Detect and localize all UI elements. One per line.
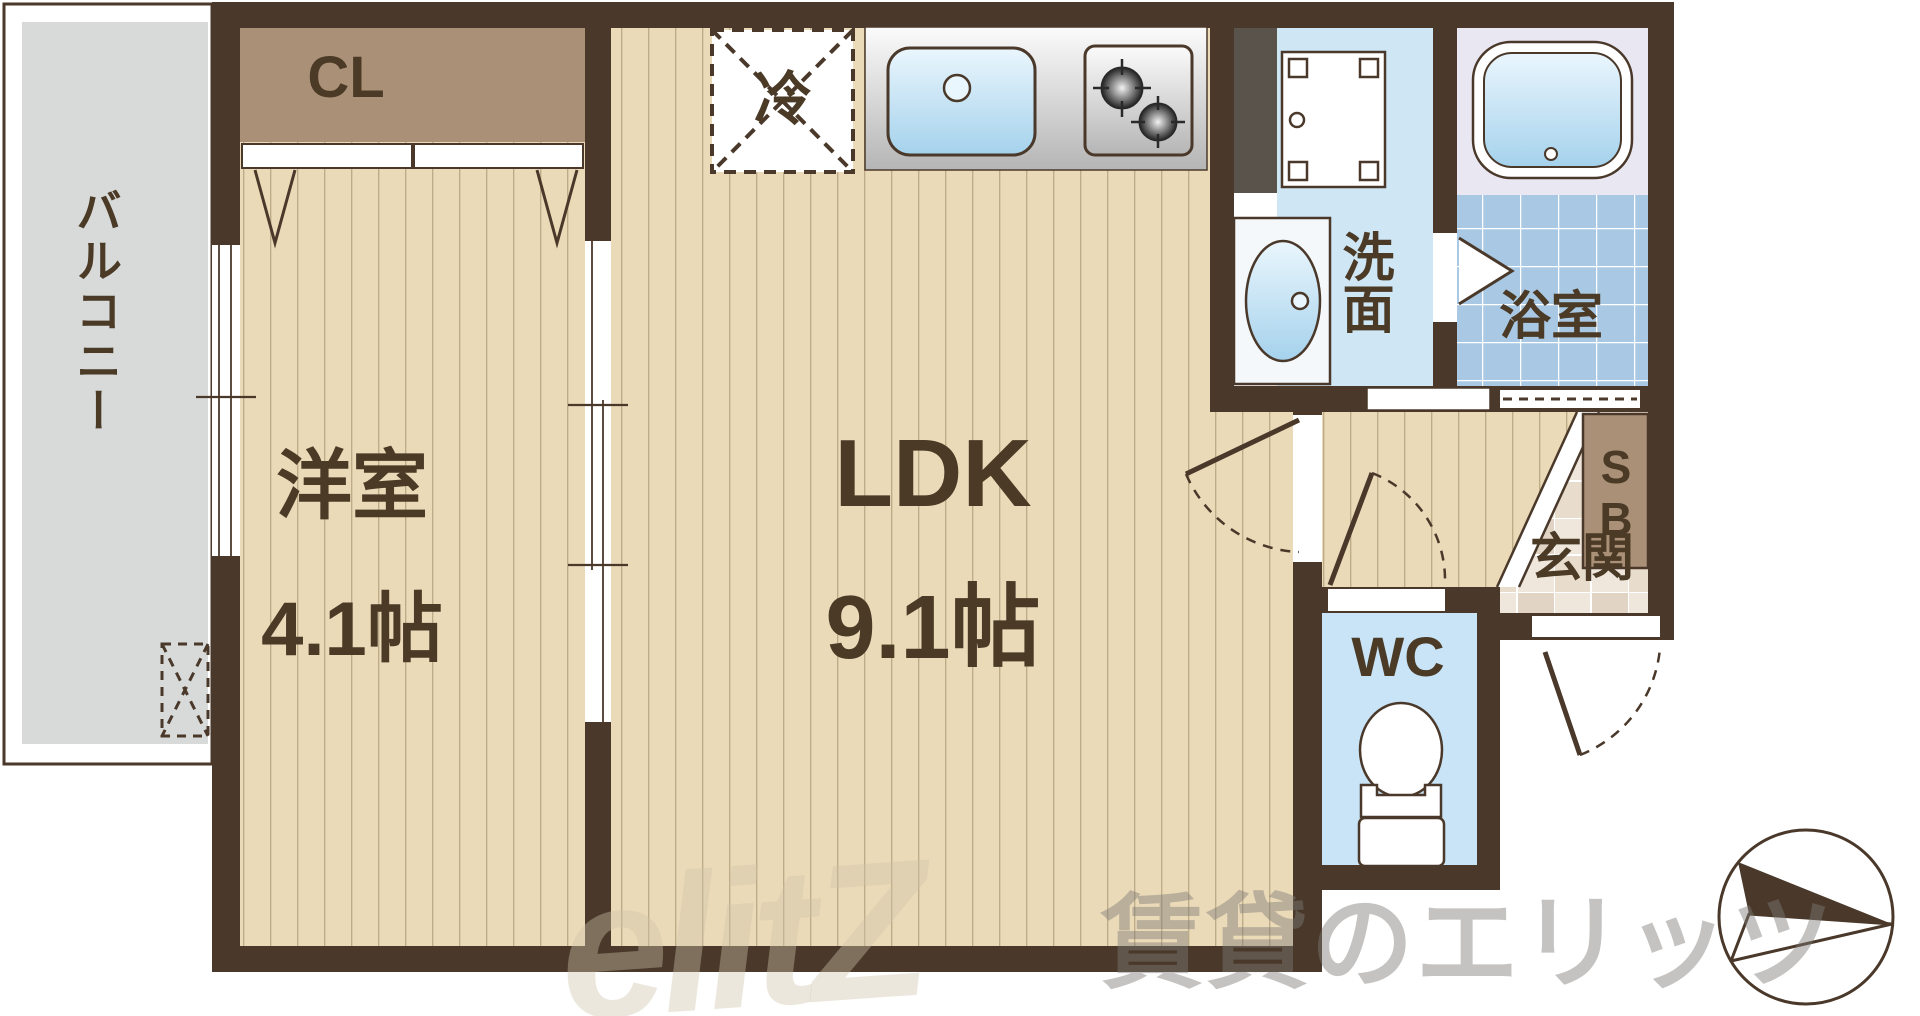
washroom-label: 洗面 bbox=[1337, 230, 1389, 334]
western-room-size: 4.1帖 bbox=[261, 592, 443, 668]
pipe-space bbox=[1234, 28, 1277, 193]
bathroom-label: 浴室 bbox=[1499, 291, 1603, 343]
entrance-door bbox=[1532, 616, 1660, 755]
ldk-label: LDK bbox=[834, 426, 1031, 522]
compass bbox=[1719, 830, 1893, 1004]
washing-machine-pan bbox=[1282, 52, 1385, 187]
refrigerator-label: 冷 bbox=[754, 71, 812, 129]
western-room-label: 洋室 bbox=[276, 449, 428, 525]
kitchen-sink bbox=[888, 48, 1035, 155]
floorplan-page: バルコニー CL 洋室 4.1帖 LDK 9.1帖 冷 洗面 浴室 WC 玄関 … bbox=[0, 0, 1920, 1016]
closet-floor bbox=[240, 28, 585, 142]
bathtub bbox=[1473, 42, 1632, 178]
kitchen-stove bbox=[1085, 46, 1192, 155]
bathroom-vent bbox=[1500, 390, 1640, 408]
shoebox-label: SB bbox=[1593, 441, 1639, 545]
closet-label: CL bbox=[307, 49, 384, 107]
wc-label: WC bbox=[1351, 629, 1444, 685]
toilet bbox=[1359, 703, 1444, 866]
kitchen-counter bbox=[865, 27, 1207, 170]
closet-doors bbox=[242, 144, 583, 168]
wash-basin bbox=[1234, 218, 1330, 384]
ldk-size: 9.1帖 bbox=[825, 583, 1040, 673]
balcony-label: バルコニー bbox=[73, 187, 119, 437]
washroom-sliding-door bbox=[1367, 388, 1490, 410]
western-room-floor bbox=[240, 142, 585, 946]
